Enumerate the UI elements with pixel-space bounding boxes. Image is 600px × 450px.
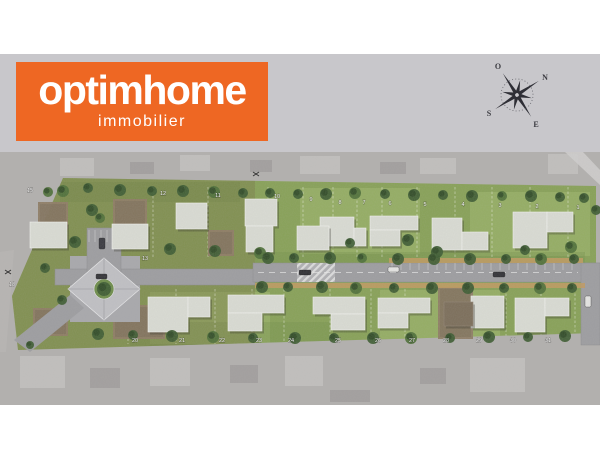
compass-south-label: S xyxy=(487,109,492,118)
compass-east-label: E xyxy=(533,120,538,129)
brand-tagline: immobilier xyxy=(98,113,186,131)
brand-logo: optimhome immobilier xyxy=(16,62,268,141)
scan-grain-overlay xyxy=(0,152,600,405)
compass-north-label: N xyxy=(542,73,548,82)
brand-name: optimhome xyxy=(38,70,245,111)
compass-star-group xyxy=(481,59,553,131)
compass-west-label: O xyxy=(495,62,501,71)
page: optimhome immobilier N O S E 12345678910… xyxy=(0,0,600,450)
site-plan-map: 1234567891011121513182021222324252627282… xyxy=(0,152,600,405)
compass-rose-icon: N O S E xyxy=(470,52,565,138)
